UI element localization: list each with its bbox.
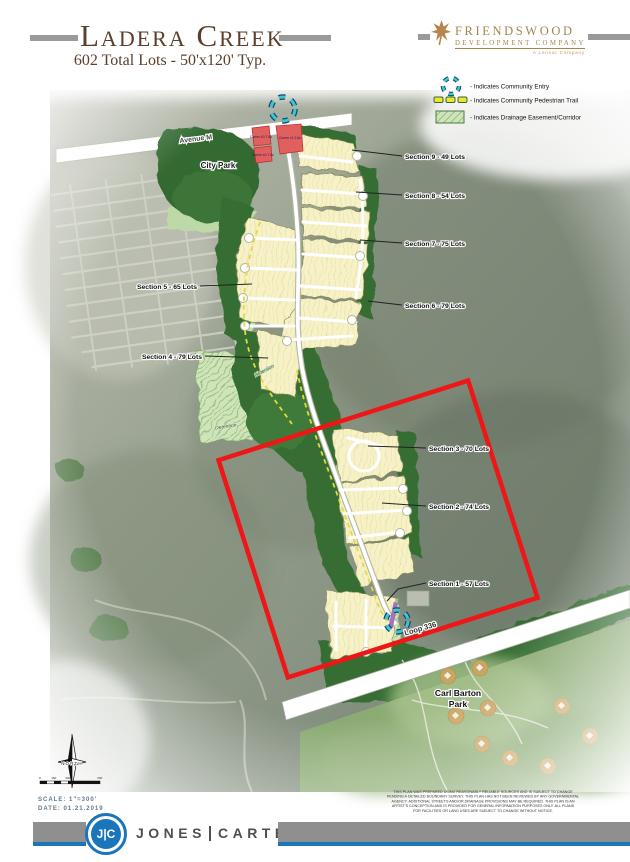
date-text: DATE: 01.21.2019 <box>38 806 104 812</box>
legend-drainage-label: - Indicates Drainage Easement/Corridor <box>470 115 581 122</box>
carl-barton-park-label2: Park <box>449 699 468 709</box>
svg-text:AGENCY. ADDITIONAL STREETS AN: AGENCY. ADDITIONAL STREETS AND/OR DRAINA… <box>392 799 575 803</box>
logo-rule-left <box>418 34 430 40</box>
svg-text:FOR FACILITIES OR LAND USES AR: FOR FACILITIES OR LAND USES ARE SUBJECT … <box>413 809 553 812</box>
logo-tagline: A Lennar Company <box>455 50 585 55</box>
logo-subname: DEVELOPMENT COMPANY <box>455 40 585 49</box>
svg-text:THIS PLAN WAS PREPARED USING R: THIS PLAN WAS PREPARED USING REASONABLY … <box>393 790 573 794</box>
title-rule-left <box>30 35 78 41</box>
page-title: Ladera Creek <box>80 18 278 54</box>
legend-entry-label: - Indicates Community Entry <box>470 84 550 91</box>
carl-barton-park-label: Carl Barton <box>435 688 481 698</box>
footer-stripe-right <box>278 842 630 846</box>
section-3-label: Section 3 - 70 Lots <box>429 446 489 453</box>
scale-text: SCALE: 1"=300' <box>38 797 97 803</box>
footer-bar-left <box>33 822 86 842</box>
section-5-label: Section 5 - 65 Lots <box>137 284 197 291</box>
logo-name: FRIENDSWOOD <box>455 24 585 39</box>
scale-tick: 600' <box>97 776 103 780</box>
site-plan-page: Ladera Creek 602 Total Lots - 50'x120' T… <box>0 0 630 862</box>
footer-stripe-left <box>33 842 86 846</box>
disclaimer: THIS PLAN WAS PREPARED USING REASONABLY … <box>387 790 579 812</box>
title-rule-right <box>279 35 331 41</box>
section-1-label: Section 1 - 57 Lots <box>429 581 489 588</box>
svg-text:ARTIST'S CONCEPTION AND IS PRO: ARTIST'S CONCEPTION AND IS PROVIDED FOR … <box>392 804 575 808</box>
svg-text:PENDING A DETAILED BOUNDARY SU: PENDING A DETAILED BOUNDARY SURVEY. THIS… <box>387 795 579 799</box>
north-label: NORTH <box>61 761 83 766</box>
section-6-label: Section 6 - 79 Lots <box>405 303 465 310</box>
city-park-label: City Park <box>201 161 236 170</box>
lot-summary: 602 Total Lots - 50'x120' Typ. <box>60 52 280 70</box>
section-8-label: Section 8 - 54 Lots <box>405 193 465 200</box>
jones-carter-monogram: J|C <box>85 813 127 855</box>
footer-name-jones: JONES <box>136 825 206 841</box>
section-9-label: Section 9 - 49 Lots <box>405 154 465 161</box>
section-4-label: Section 4 - 79 Lots <box>142 354 202 361</box>
legend-trail-label: - Indicates Community Pedestrian Trail <box>470 98 578 105</box>
drainage-easement-icon <box>436 111 464 123</box>
pedestrian-trail-icon <box>434 97 467 103</box>
leaf-icon <box>430 20 453 51</box>
scale-tick: 300' <box>65 776 71 780</box>
footer-name-divider <box>209 826 211 841</box>
footer-bar-right <box>278 822 630 842</box>
section-2-label: Section 2 - 74 Lots <box>429 504 489 511</box>
friendswood-logo: FRIENDSWOOD DEVELOPMENT COMPANY A Lennar… <box>418 20 630 58</box>
site-plan-map: Comm ±0.7 Ac Comm ±0.7 Ac Comm ±1.3 Ac <box>0 74 630 812</box>
scale-tick: 150' <box>51 776 57 780</box>
jones-carter-footer: J|C JONES CARTER <box>0 818 630 856</box>
logo-rule-right <box>588 34 630 40</box>
section-7-label: Section 7 - 75 Lots <box>405 241 465 248</box>
vignette <box>50 90 630 792</box>
